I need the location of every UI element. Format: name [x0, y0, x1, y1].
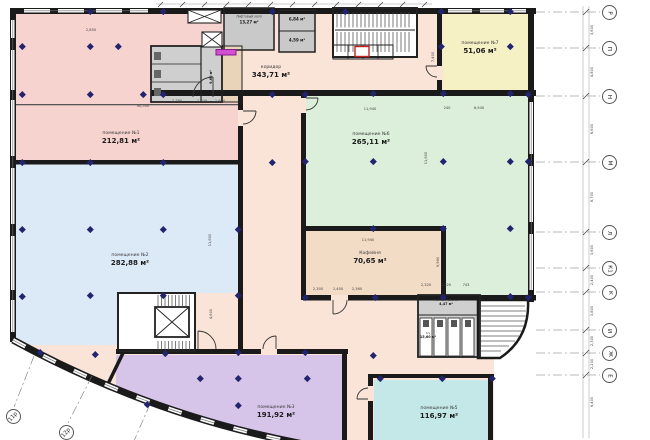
dimension-label: 2,360 — [352, 287, 362, 291]
dimension-label: 6,700 — [590, 192, 594, 202]
room3-label: помещение №3 191,92 м² — [257, 405, 295, 419]
dimension-label: 2,200 — [590, 359, 594, 369]
dimension-label: 1,020 — [441, 283, 451, 287]
inventory-label: Комната уб.инв. 4,47 м² — [434, 299, 458, 307]
dimension-label: 11,600 — [208, 234, 212, 247]
floor-plan: помещение №1 212,81 м² помещение №2 282,… — [0, 0, 650, 440]
dimension-label: 4,600 — [209, 309, 213, 319]
dimension-label: 4,800 — [590, 67, 594, 77]
dimension-label: 2,780 — [172, 99, 182, 103]
dimension-label: 2,300 — [313, 287, 323, 291]
dimension-label: 11,940 — [364, 107, 377, 111]
room5-label: помещение №5 116,97 м² — [420, 406, 458, 420]
grid-axis-12р: 12р — [59, 425, 74, 440]
room1-label: помещение №1 212,81 м² — [102, 131, 140, 145]
grid-axis-Н: Н — [602, 89, 617, 104]
wc-label: С/у 15,60 м² — [420, 332, 436, 340]
dimension-label: 2,850 — [86, 28, 96, 32]
dimension-label: 1,020 — [197, 99, 207, 103]
plan-linework — [0, 0, 650, 440]
dimension-label: 2,400 — [590, 275, 594, 285]
dimension-label: 6,400 — [590, 397, 594, 407]
dimension-label: 3,600 — [590, 245, 594, 255]
dimension-label: 40,500 — [137, 104, 150, 108]
coffee-label: Кофейня 70,65 м² — [353, 251, 386, 265]
dimension-label: 743 — [463, 283, 470, 287]
dimension-label: 5,960 — [436, 257, 440, 267]
dimension-label: 3,600 — [590, 25, 594, 35]
small-room-label: 9,60 м² — [209, 70, 213, 84]
dimension-label: 1,600 — [215, 99, 225, 103]
grid-axis-Ж: Ж — [602, 346, 617, 361]
dimension-label: 2,300 — [590, 336, 594, 346]
room7-label: помещение №7 51,06 м² — [461, 41, 498, 55]
grid-axis-Е: Е — [602, 368, 617, 383]
dimension-label: 1,400 — [333, 287, 343, 291]
grid-axis-М: М — [602, 155, 617, 170]
grid-axis-Л: Л — [602, 225, 617, 240]
dimension-label: 6,940 — [474, 106, 484, 110]
grid-axis-К1: К1 — [602, 261, 617, 276]
exterior-cover — [0, 0, 650, 440]
room2-label: помещение №2 282,88 м² — [111, 253, 149, 267]
dimension-label: 2,320 — [421, 283, 431, 287]
room6-label: помещение №6 265,11 м² — [352, 132, 390, 146]
grid-axis-11р: 11р — [6, 409, 21, 424]
dimension-label: 3,800 — [590, 306, 594, 316]
dimension-label: 11,600 — [424, 152, 428, 165]
grid-axis-Р: Р — [602, 5, 617, 20]
dimension-label: 7,400 — [431, 52, 435, 62]
grid-axis-И: И — [602, 323, 617, 338]
dimension-label: 11,940 — [362, 238, 375, 242]
dimension-label: 6,600 — [590, 124, 594, 134]
lift-hall-label: Лифтовый холл 13,27 м² — [236, 16, 262, 25]
store-a-label: 6,84 м² — [289, 17, 305, 22]
store-b-label: 4,59 м² — [289, 38, 305, 43]
dimension-label: 240 — [444, 106, 451, 110]
grid-axis-П: П — [602, 41, 617, 56]
core-details — [118, 8, 480, 357]
grid-axis-К: К — [602, 285, 617, 300]
corridor-label: коридор 343,71 м² — [252, 65, 290, 79]
